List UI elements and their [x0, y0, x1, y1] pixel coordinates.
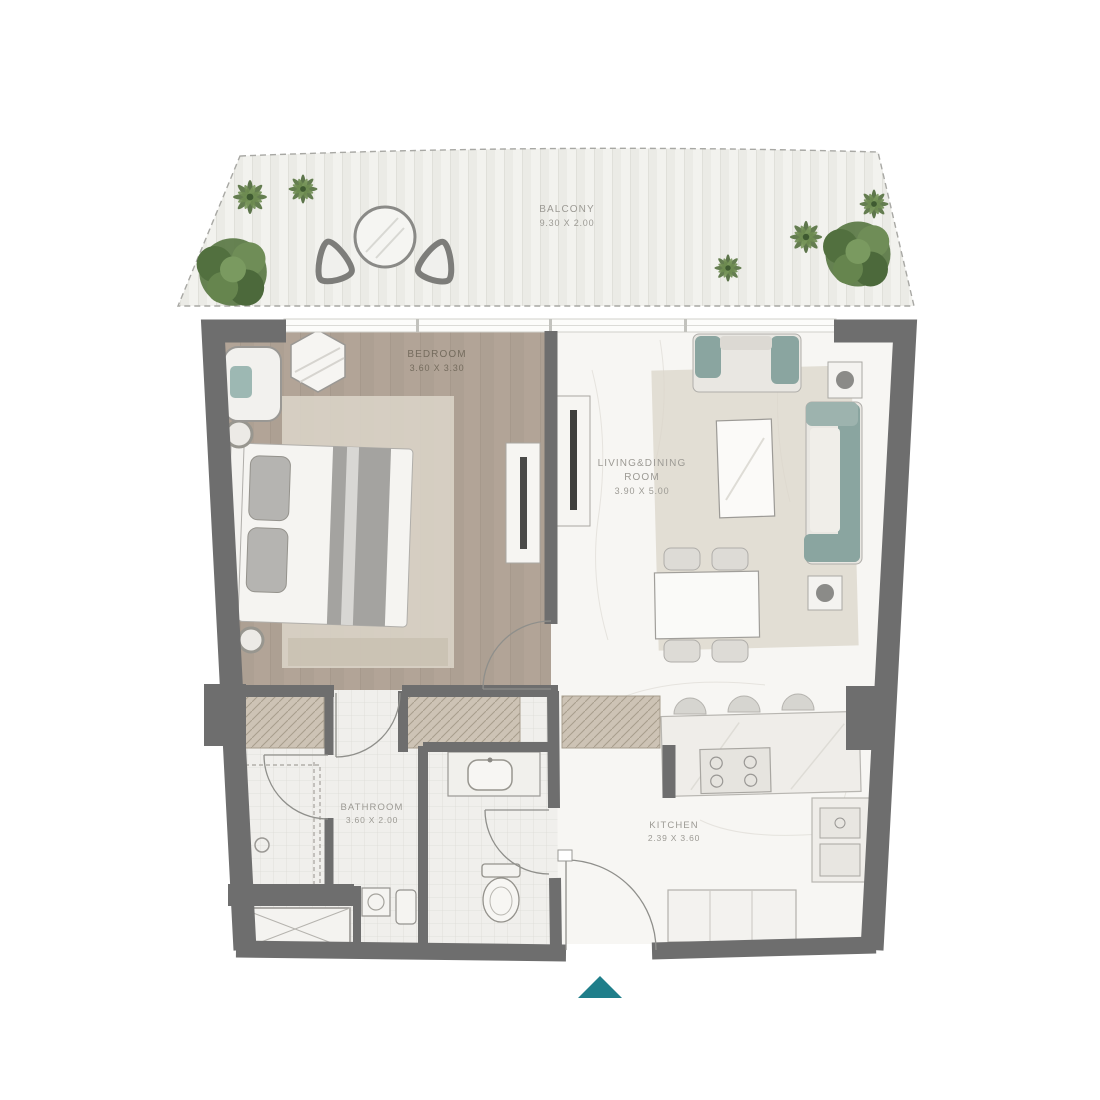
plant-palm-icon	[860, 190, 889, 219]
bathroom-label: BATHROOM	[341, 802, 404, 813]
vanity-sink	[448, 752, 540, 796]
kitchen-counter-right	[812, 798, 870, 882]
plant-palm-icon	[289, 175, 318, 204]
bedroom-armchair	[224, 347, 281, 421]
floor-plan-page: BALCONY 9.30 X 2.00	[0, 0, 1100, 1100]
wall-bottom-right	[652, 945, 876, 951]
bed-blanket	[327, 446, 391, 626]
sofa-top	[693, 334, 801, 392]
floor-plan-canvas: BALCONY 9.30 X 2.00	[0, 0, 1100, 1100]
wall-column-left	[204, 684, 246, 746]
kitchen-island	[661, 711, 861, 796]
living-dims: 3.90 X 5.00	[615, 486, 670, 496]
dining-table	[654, 571, 759, 639]
side-table-plant	[828, 362, 862, 398]
wall-column-right	[846, 686, 886, 750]
bedroom-dims: 3.60 X 3.30	[410, 363, 465, 373]
closet-hatched	[406, 696, 520, 748]
sofa-right	[804, 402, 862, 564]
living-label-line2: ROOM	[624, 472, 660, 483]
tv-console	[556, 396, 590, 526]
wall-tub-band	[228, 884, 354, 906]
wall-bottom-left	[236, 949, 566, 953]
cooktop	[700, 748, 771, 794]
dining-chair	[712, 640, 748, 662]
closet-hatched	[562, 696, 660, 748]
window-wall	[284, 319, 836, 332]
balcony-label: BALCONY	[539, 204, 595, 215]
side-table-plant	[808, 576, 842, 610]
bed	[225, 441, 413, 629]
bed-pillow	[248, 456, 290, 521]
toilet	[482, 864, 520, 922]
plant-palm-icon	[714, 254, 741, 281]
balcony: BALCONY 9.30 X 2.00	[178, 148, 914, 306]
kitchen-label: KITCHEN	[649, 820, 698, 831]
kitchen-cabinet-bottom	[668, 890, 796, 942]
balcony-table	[355, 207, 415, 267]
kitchen-dims: 2.39 X 3.60	[648, 833, 700, 843]
bedroom-label: BEDROOM	[407, 349, 466, 360]
plant-palm-icon	[790, 221, 822, 253]
bed-pillow	[246, 527, 288, 592]
bedroom-rug-shadow	[288, 638, 448, 666]
living-label-line1: LIVING&DINING	[598, 458, 687, 469]
bedroom-wardrobe	[506, 443, 540, 563]
plant-palm-icon	[233, 180, 267, 214]
wardrobe-closets	[232, 696, 660, 748]
nightstand	[239, 628, 263, 652]
balcony-dims: 9.30 X 2.00	[540, 218, 595, 228]
dining-chair	[712, 548, 748, 570]
bathroom-dims: 3.60 X 2.00	[346, 815, 398, 825]
dining-chair	[664, 548, 700, 570]
dining-chair	[664, 640, 700, 662]
